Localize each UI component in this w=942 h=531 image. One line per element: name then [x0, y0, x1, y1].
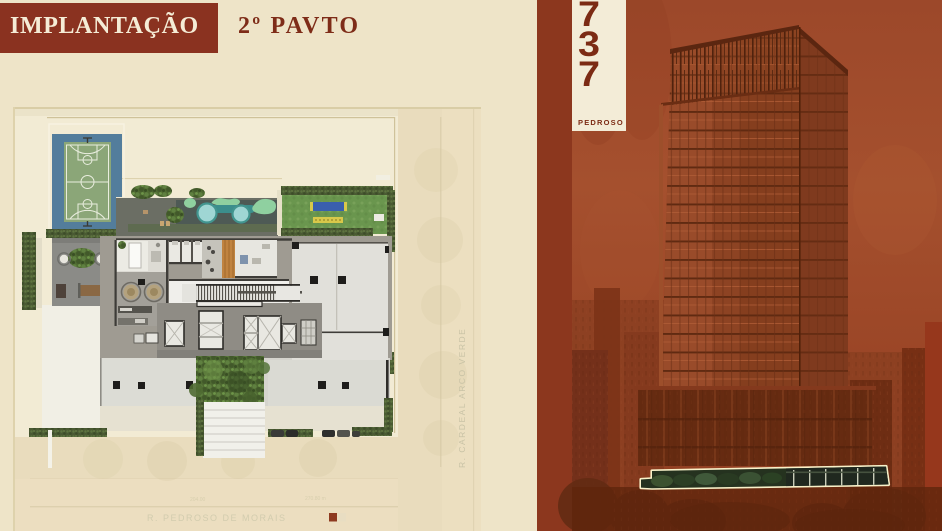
svg-text:R. CARDEAL ARCO VERDE: R. CARDEAL ARCO VERDE — [457, 328, 467, 468]
svg-text:270.80 m: 270.80 m — [305, 496, 326, 502]
svg-text:R. PEDROSO DE MORAIS: R. PEDROSO DE MORAIS — [147, 513, 287, 523]
svg-text:204.00: 204.00 — [190, 497, 206, 503]
